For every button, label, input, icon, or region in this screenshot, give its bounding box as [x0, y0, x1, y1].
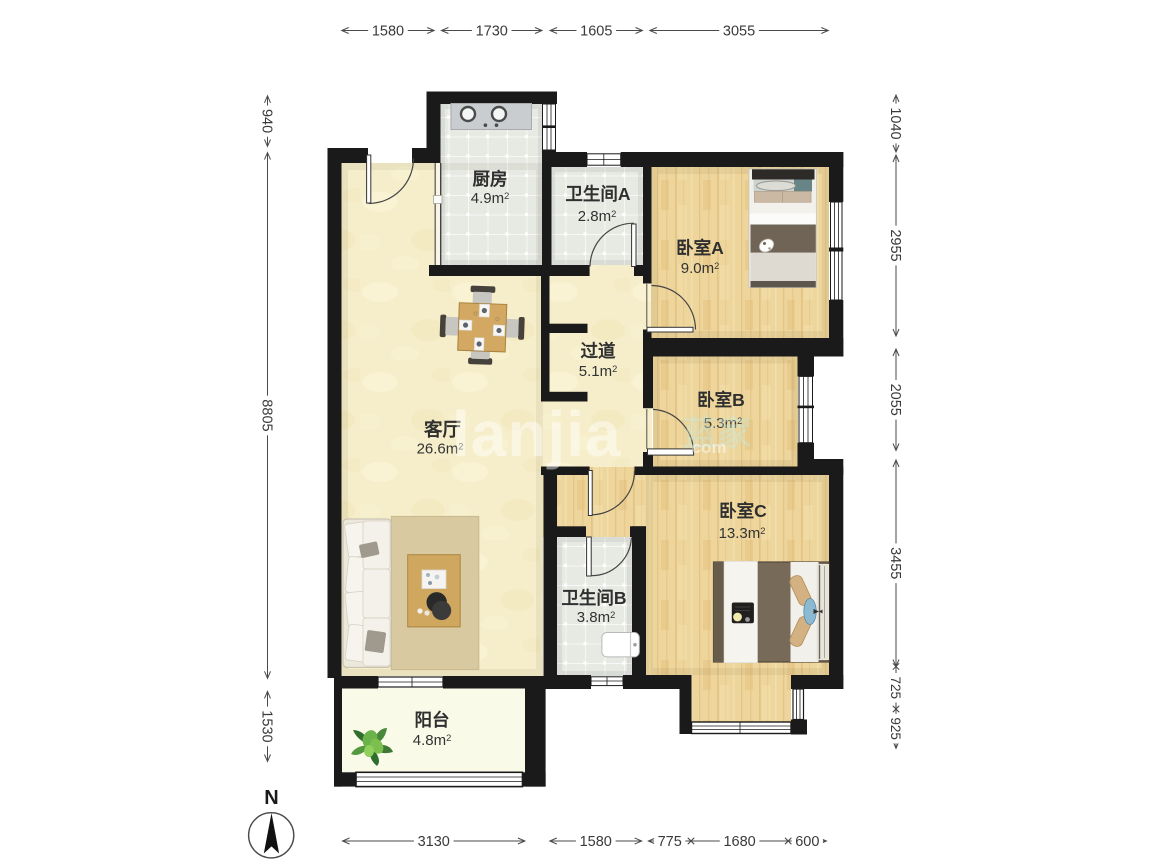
svg-text:1605: 1605	[580, 24, 612, 40]
svg-text:3055: 3055	[723, 24, 755, 40]
svg-text:2955: 2955	[887, 229, 903, 261]
svg-text:9.0m2: 9.0m2	[681, 260, 720, 277]
svg-text:卫生间A: 卫生间A	[565, 184, 630, 204]
svg-text:卧室B: 卧室B	[697, 390, 745, 410]
svg-text:卫生间B: 卫生间B	[561, 588, 626, 608]
svg-text:8805: 8805	[259, 399, 275, 431]
svg-text:3130: 3130	[418, 834, 450, 850]
svg-text:775: 775	[658, 834, 682, 850]
svg-text:4.9m2: 4.9m2	[471, 190, 510, 207]
svg-text:1040: 1040	[887, 107, 903, 139]
svg-text:1530: 1530	[259, 710, 275, 742]
svg-text:卧室C: 卧室C	[719, 501, 767, 521]
svg-text:5.1m2: 5.1m2	[579, 363, 618, 380]
svg-text:3455: 3455	[887, 547, 903, 579]
svg-text:4.8m2: 4.8m2	[413, 732, 452, 749]
svg-text:13.3m2: 13.3m2	[719, 525, 766, 542]
svg-text:600: 600	[795, 834, 819, 850]
svg-text:2.8m2: 2.8m2	[578, 208, 617, 225]
svg-text:.com: .com	[687, 438, 727, 457]
svg-text:过道: 过道	[581, 341, 616, 361]
svg-text:925: 925	[888, 717, 903, 740]
svg-text:940: 940	[259, 109, 275, 133]
svg-text:1680: 1680	[723, 834, 755, 850]
svg-text:2055: 2055	[887, 384, 903, 416]
svg-text:lanjia: lanjia	[452, 398, 622, 470]
svg-text:阳台: 阳台	[415, 710, 450, 730]
svg-text:N: N	[264, 787, 278, 809]
svg-text:卧室A: 卧室A	[676, 238, 724, 258]
svg-text:1580: 1580	[372, 24, 404, 40]
svg-text:厨房: 厨房	[473, 169, 508, 189]
svg-text:3.8m2: 3.8m2	[577, 609, 616, 626]
svg-text:1580: 1580	[580, 834, 612, 850]
svg-text:1730: 1730	[476, 24, 508, 40]
svg-text:725: 725	[888, 676, 903, 699]
